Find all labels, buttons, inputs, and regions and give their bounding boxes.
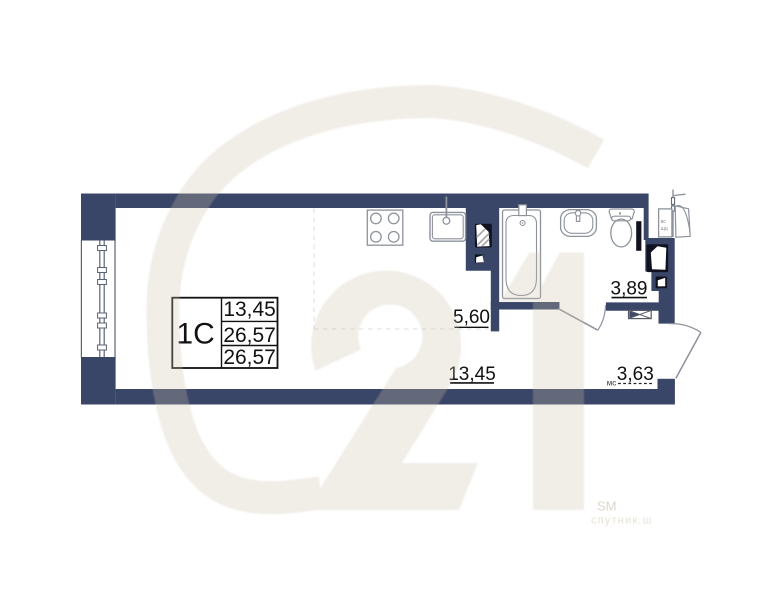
svg-text:спутник.ш: спутник.ш xyxy=(591,515,653,527)
svg-text:13,45: 13,45 xyxy=(223,298,276,321)
svg-text:5,60: 5,60 xyxy=(453,307,490,328)
svg-text:3,63: 3,63 xyxy=(617,364,654,385)
svg-text:мс: мс xyxy=(607,379,617,388)
svg-text:вс: вс xyxy=(661,219,667,225)
svg-text:3,89: 3,89 xyxy=(611,278,648,299)
svg-text:SM: SM xyxy=(597,499,617,514)
svg-text:1С: 1С xyxy=(176,318,214,351)
svg-text:26,57: 26,57 xyxy=(223,324,276,347)
svg-text:26,57: 26,57 xyxy=(223,346,276,369)
svg-text:щц: щц xyxy=(661,226,668,232)
